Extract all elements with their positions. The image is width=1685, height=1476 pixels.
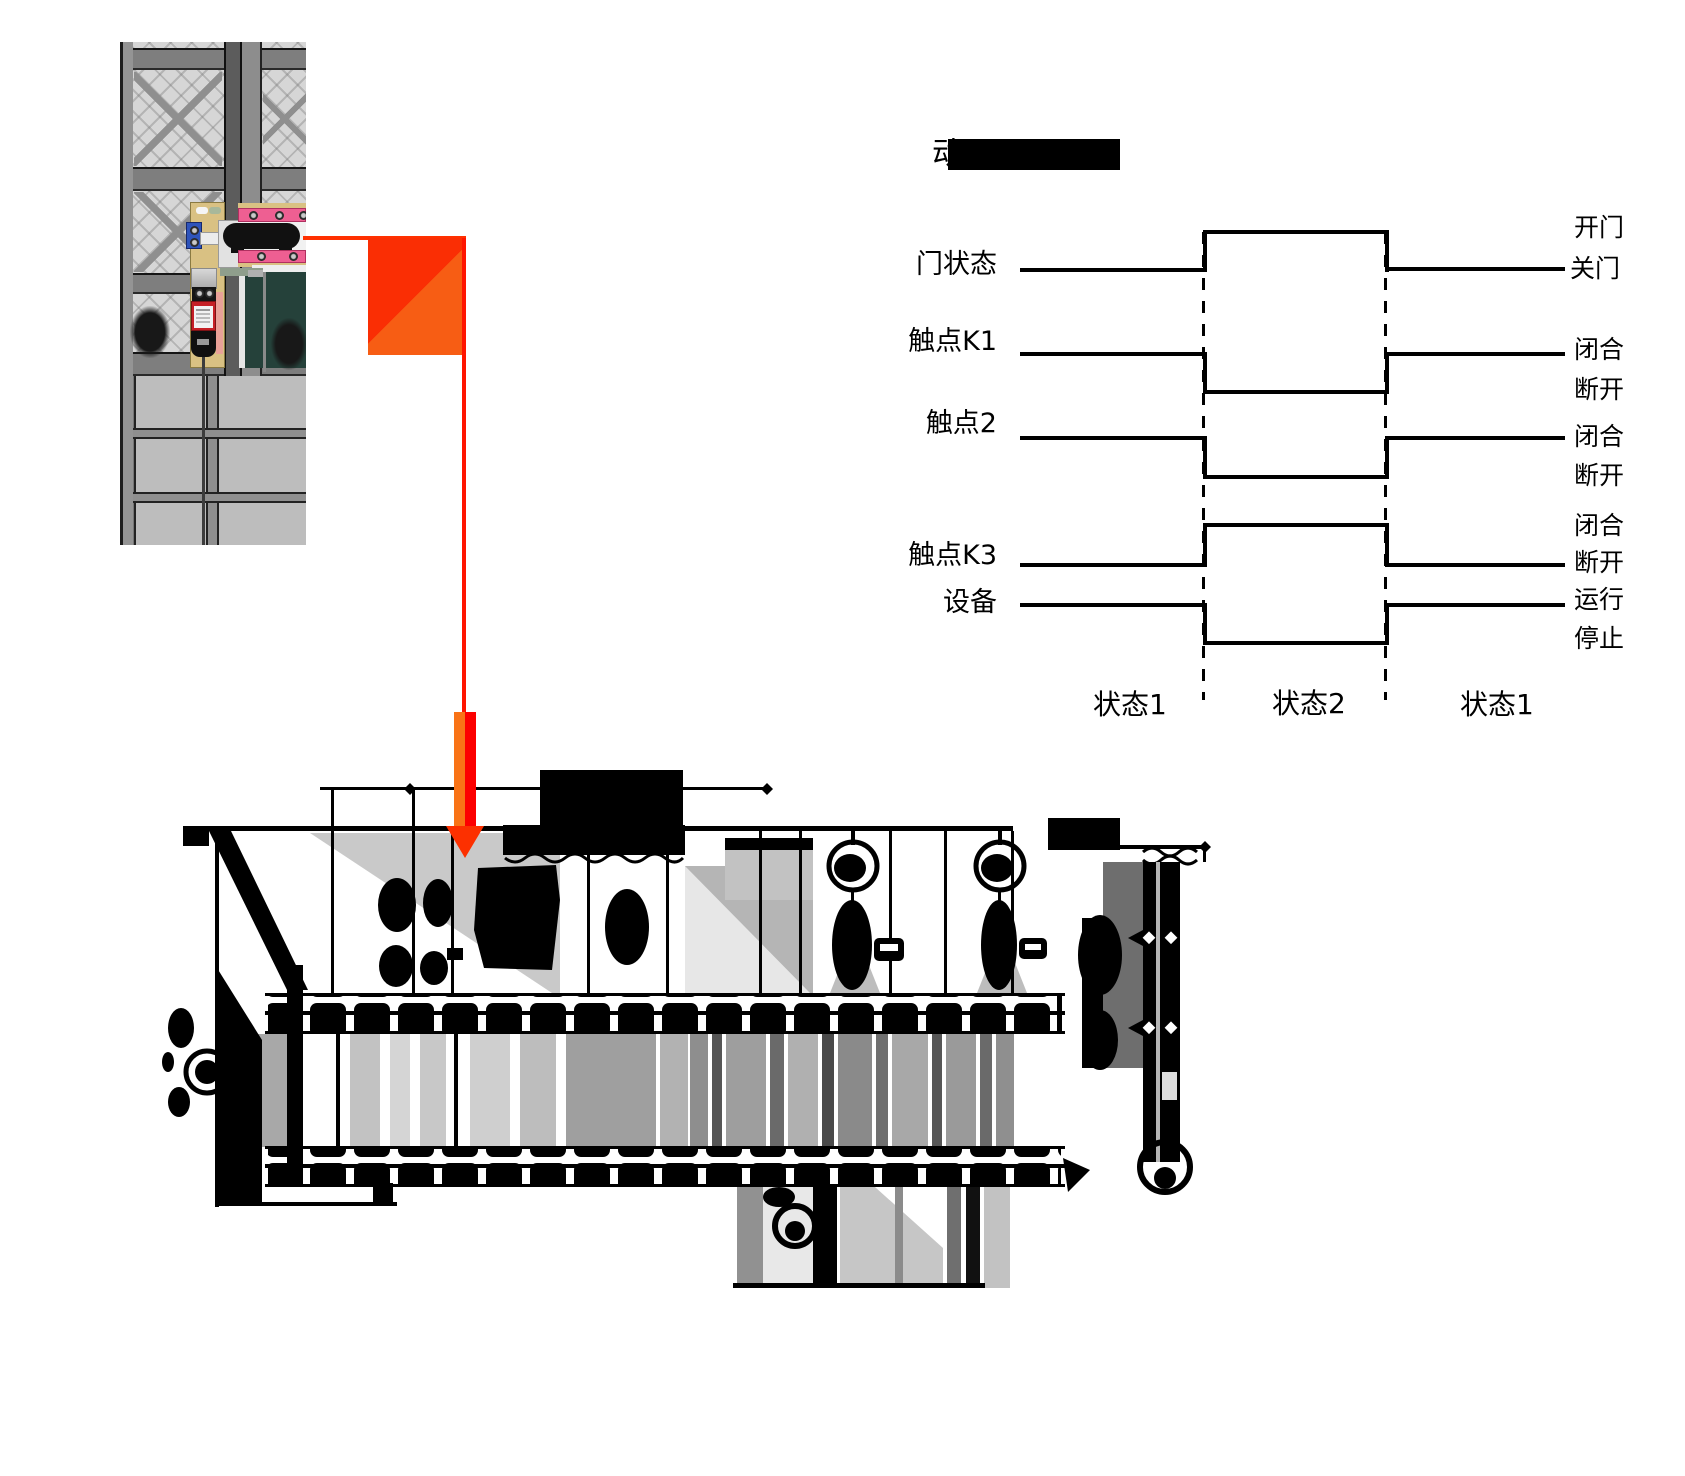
- signal-label-device: 设备: [787, 586, 997, 620]
- waveform-k1: [1020, 352, 1205, 356]
- level-k3-closed: 闭合: [1574, 510, 1624, 542]
- level-door-open: 开门: [1574, 212, 1624, 244]
- signal-label-k1: 触点K1: [787, 325, 997, 359]
- signal-label-k3: 触点K3: [787, 539, 997, 573]
- level-c2-closed: 闭合: [1574, 421, 1624, 453]
- signal-label-contact2: 触点2: [787, 407, 997, 441]
- waveform-contact2: [1020, 436, 1205, 440]
- waveform-k3: [1020, 563, 1205, 567]
- cad-schematic: [150, 765, 1230, 1305]
- level-c2-open: 断开: [1574, 460, 1624, 492]
- redacted-title-box: [948, 139, 1120, 170]
- waveform-door: [1020, 268, 1205, 272]
- state-label-1: 状态1: [1093, 688, 1167, 722]
- schematic-shading: [245, 833, 1027, 1147]
- level-dev-running: 运行: [1574, 584, 1624, 616]
- state-label-2: 状态2: [1272, 687, 1346, 721]
- level-k1-closed: 闭合: [1574, 334, 1624, 366]
- waveform-device: [1020, 603, 1205, 607]
- schematic-structure: [162, 770, 1090, 1288]
- signal-label-door: 门状态: [787, 248, 997, 282]
- level-k3-open: 断开: [1574, 547, 1624, 579]
- timing-diagram: 动 门状态 触点K1 触点2 触点K3 设备 开门 关门 闭合 断开 闭合 断开…: [0, 0, 1685, 760]
- state-label-3: 状态1: [1460, 688, 1534, 722]
- level-k1-open: 断开: [1574, 374, 1624, 406]
- level-door-closed: 关门: [1570, 253, 1620, 285]
- schematic-right-column: [1048, 818, 1211, 1192]
- callout-arrowhead-icon: [446, 826, 484, 858]
- level-dev-stopped: 停止: [1574, 623, 1624, 655]
